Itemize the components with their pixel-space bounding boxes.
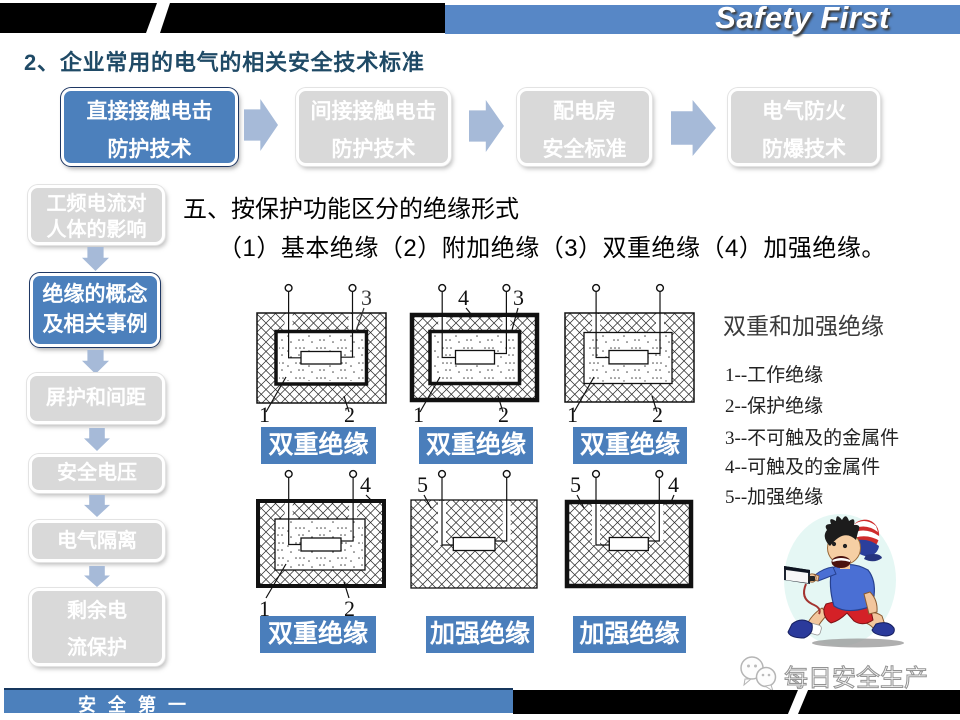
- svg-text:3: 3: [361, 285, 372, 310]
- svg-text:2: 2: [498, 402, 509, 427]
- svg-text:5: 5: [417, 472, 428, 497]
- svg-text:5: 5: [570, 472, 581, 497]
- svg-text:2: 2: [344, 402, 355, 427]
- svg-text:4: 4: [458, 285, 469, 310]
- svg-text:1: 1: [413, 402, 424, 427]
- svg-text:4: 4: [668, 472, 679, 497]
- svg-text:2: 2: [652, 402, 663, 427]
- svg-text:4: 4: [360, 472, 371, 497]
- svg-text:3: 3: [513, 285, 524, 310]
- svg-text:1: 1: [259, 402, 270, 427]
- svg-text:1: 1: [567, 402, 578, 427]
